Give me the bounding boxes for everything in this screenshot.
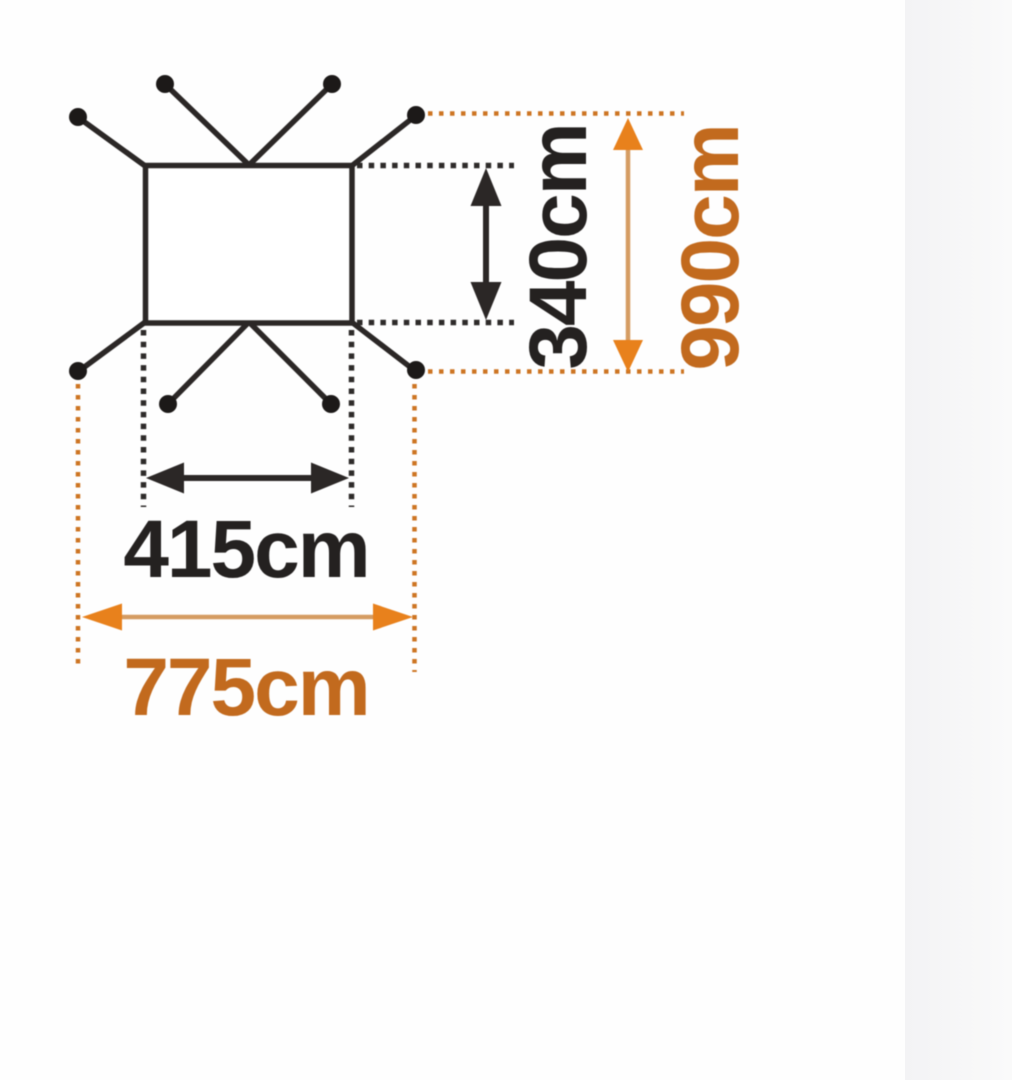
guy-line-bottom-center-right — [248, 321, 330, 403]
guy-line-top-center-left — [166, 85, 250, 166]
arrowhead-right-775 — [373, 604, 413, 631]
guy-line-bottom-center-left — [169, 321, 250, 403]
stake-point-top-center-right — [323, 75, 341, 93]
tarp-dimension-diagram: 340cm 990cm 415cm 775cm — [0, 0, 1012, 1080]
stake-point-bottom-left — [69, 362, 87, 380]
dimension-outer-width: 775cm — [82, 604, 413, 734]
dimension-label-775cm: 775cm — [123, 642, 368, 733]
stake-point-bottom-center-left — [159, 395, 177, 413]
arrowhead-right-415 — [311, 463, 349, 494]
arrowhead-up-990 — [613, 118, 643, 150]
dimension-outer-depth: 990cm — [613, 118, 756, 372]
product-dimension-image: 340cm 990cm 415cm 775cm — [0, 0, 1012, 1080]
dimension-label-415cm: 415cm — [123, 504, 368, 595]
tarp-canopy-outline — [146, 166, 353, 324]
guy-line-top-right — [349, 117, 414, 168]
arrowhead-down-990 — [613, 340, 643, 372]
guy-line-top-center-right — [248, 85, 331, 166]
guy-line-top-left — [79, 118, 148, 168]
dimension-inner-width: 415cm — [123, 463, 368, 596]
arrowhead-left-775 — [82, 604, 122, 631]
stake-point-top-right — [407, 106, 425, 124]
arrowhead-down-340 — [471, 282, 502, 320]
dimension-label-340cm: 340cm — [513, 124, 604, 369]
arrowhead-up-340 — [471, 168, 502, 206]
dimension-inner-depth: 340cm — [471, 124, 605, 369]
stake-point-bottom-center-right — [322, 395, 340, 413]
stake-point-bottom-right — [407, 361, 425, 379]
guy-line-bottom-right — [349, 320, 414, 370]
dimension-label-990cm: 990cm — [665, 125, 756, 370]
guy-line-bottom-left — [79, 320, 148, 371]
stake-point-top-left — [69, 108, 87, 126]
stake-point-top-center-left — [156, 75, 174, 93]
arrowhead-left-415 — [146, 463, 184, 494]
